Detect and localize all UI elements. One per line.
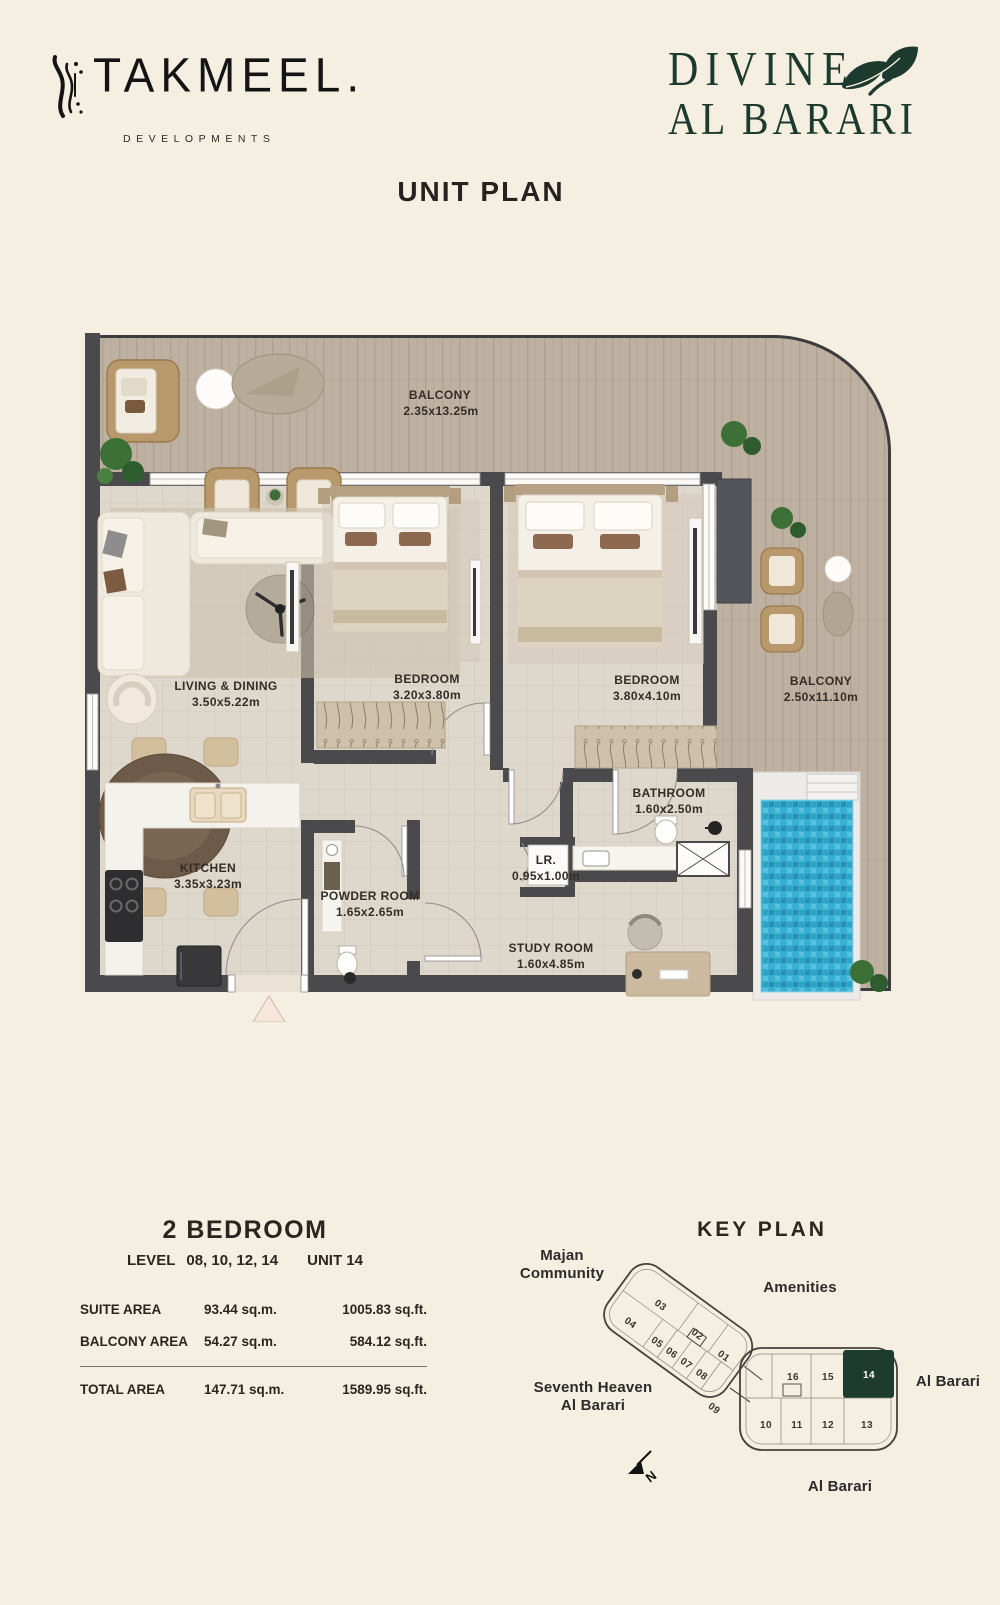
room-label-lr: LR. <box>536 853 557 867</box>
room-label-bedroom1: BEDROOM <box>394 672 459 686</box>
area-sqft: 1005.83 sq.ft. <box>316 1302 427 1317</box>
north-arrow-icon: N <box>628 1451 659 1485</box>
level-label: LEVEL <box>127 1252 175 1269</box>
area-label: SUITE AREA <box>80 1302 204 1317</box>
label-al-barari-bottom: Al Barari <box>808 1478 872 1495</box>
keyplan-wing-b: 16 15 14 10 11 12 13 <box>740 1348 897 1450</box>
keyplan-unit: 06 <box>663 1345 679 1361</box>
area-table: SUITE AREA 93.44 sq.m. 1005.83 sq.ft. BA… <box>80 1302 427 1414</box>
area-sqm: 93.44 sq.m. <box>204 1302 316 1317</box>
keyplan-unit: 12 <box>822 1420 834 1431</box>
keyplan-unit: 07 <box>678 1356 694 1372</box>
area-sqft: 584.12 sq.ft. <box>316 1334 427 1349</box>
table-row: BALCONY AREA 54.27 sq.m. 584.12 sq.ft. <box>80 1334 427 1349</box>
takmeel-logo: TAKMEEL. DEVELOPMENTS <box>45 52 385 145</box>
area-label: TOTAL AREA <box>80 1382 204 1397</box>
keyplan-unit: 10 <box>760 1420 772 1431</box>
label-amenities: Amenities <box>763 1279 837 1296</box>
room-label-study: STUDY ROOM <box>508 941 593 955</box>
label-majan-2: Community <box>520 1265 605 1282</box>
keyplan-unit: 01 <box>715 1349 731 1365</box>
unit-number: UNIT 14 <box>307 1252 363 1269</box>
table-row: SUITE AREA 93.44 sq.m. 1005.83 sq.ft. <box>80 1302 427 1317</box>
room-dims-bedroom1: 3.20x3.80m <box>393 688 461 702</box>
page-title: UNIT PLAN <box>331 176 631 208</box>
balcony-closet <box>717 479 751 603</box>
takmeel-tagline: DEVELOPMENTS <box>123 133 385 145</box>
room-dims-living: 3.50x5.22m <box>192 695 260 709</box>
label-al-barari-right: Al Barari <box>916 1373 980 1390</box>
divine-line1: DIVINE <box>668 46 855 94</box>
room-label-balcony-top: BALCONY <box>409 388 471 402</box>
divine-line2: AL BARARI <box>668 96 917 142</box>
label-majan-1: Majan <box>540 1247 584 1264</box>
keyplan-unit: 09 <box>706 1401 722 1417</box>
keyplan-title: KEY PLAN <box>637 1218 887 1242</box>
takmeel-wordmark: TAKMEEL. <box>93 51 365 99</box>
keyplan-unit: 05 <box>649 1335 665 1351</box>
keyplan-unit: 11 <box>791 1420 803 1431</box>
room-label-balcony-right: BALCONY <box>790 674 852 688</box>
room-dims-balcony-right: 2.50x11.10m <box>784 690 858 704</box>
keyplan-unit: 04 <box>622 1315 638 1331</box>
area-sqm: 54.27 sq.m. <box>204 1334 316 1349</box>
table-separator <box>80 1366 427 1367</box>
keyplan-unit-highlighted: 14 <box>863 1370 875 1381</box>
wardrobe <box>317 702 445 748</box>
unit-level-row: LEVEL 08, 10, 12, 14 UNIT 14 <box>90 1252 400 1269</box>
divine-al-barari-logo: DIVINE AL BARARI <box>668 46 958 136</box>
area-sqm: 147.71 sq.m. <box>204 1382 316 1397</box>
table-row: TOTAL AREA 147.71 sq.m. 1589.95 sq.ft. <box>80 1382 427 1397</box>
entrance-door-leaf <box>302 899 308 975</box>
level-values: 08, 10, 12, 14 <box>186 1252 278 1269</box>
floorplan: BALCONY 2.35x13.25m LIVING & DINING 3.50… <box>85 322 895 1022</box>
pool <box>753 772 860 1000</box>
brochure-page: TAKMEEL. DEVELOPMENTS DIVINE AL BARARI U… <box>0 0 1000 1605</box>
keyplan-unit: 15 <box>822 1372 834 1383</box>
keyplan: 03 02 01 04 05 06 07 08 09 <box>500 1240 980 1520</box>
room-dims-bedroom2: 3.80x4.10m <box>613 689 681 703</box>
room-label-powder: POWDER ROOM <box>320 889 419 903</box>
room-label-bathroom: BATHROOM <box>633 786 706 800</box>
area-label: BALCONY AREA <box>80 1334 204 1349</box>
room-dims-study: 1.60x4.85m <box>517 957 585 971</box>
unit-type-title: 2 BEDROOM <box>90 1216 400 1245</box>
room-label-living: LIVING & DINING <box>174 679 277 693</box>
room-label-bedroom2: BEDROOM <box>614 673 679 687</box>
keyplan-unit: 03 <box>652 1298 668 1314</box>
room-dims-lr: 0.95x1.00m <box>512 869 580 883</box>
fridge <box>177 946 221 986</box>
keyplan-unit: 16 <box>787 1372 799 1383</box>
room-dims-kitchen: 3.35x3.23m <box>174 877 242 891</box>
north-label: N <box>643 1468 660 1486</box>
room-dims-powder: 1.65x2.65m <box>336 905 404 919</box>
tv-panel <box>290 570 294 644</box>
room-dims-bathroom: 1.60x2.50m <box>635 802 703 816</box>
label-seventh-1: Seventh Heaven <box>534 1379 653 1396</box>
entrance-arrow-icon <box>253 996 285 1022</box>
wardrobe <box>575 726 717 768</box>
elevator-core <box>783 1384 801 1396</box>
label-seventh-2: Al Barari <box>561 1397 625 1414</box>
room-dims-balcony-top: 2.35x13.25m <box>403 404 478 418</box>
area-sqft: 1589.95 sq.ft. <box>316 1382 427 1397</box>
room-label-kitchen: KITCHEN <box>180 861 236 875</box>
pool-steps <box>807 774 858 800</box>
takmeel-arabic-mark-icon <box>45 52 87 124</box>
keyplan-unit: 13 <box>861 1420 873 1431</box>
